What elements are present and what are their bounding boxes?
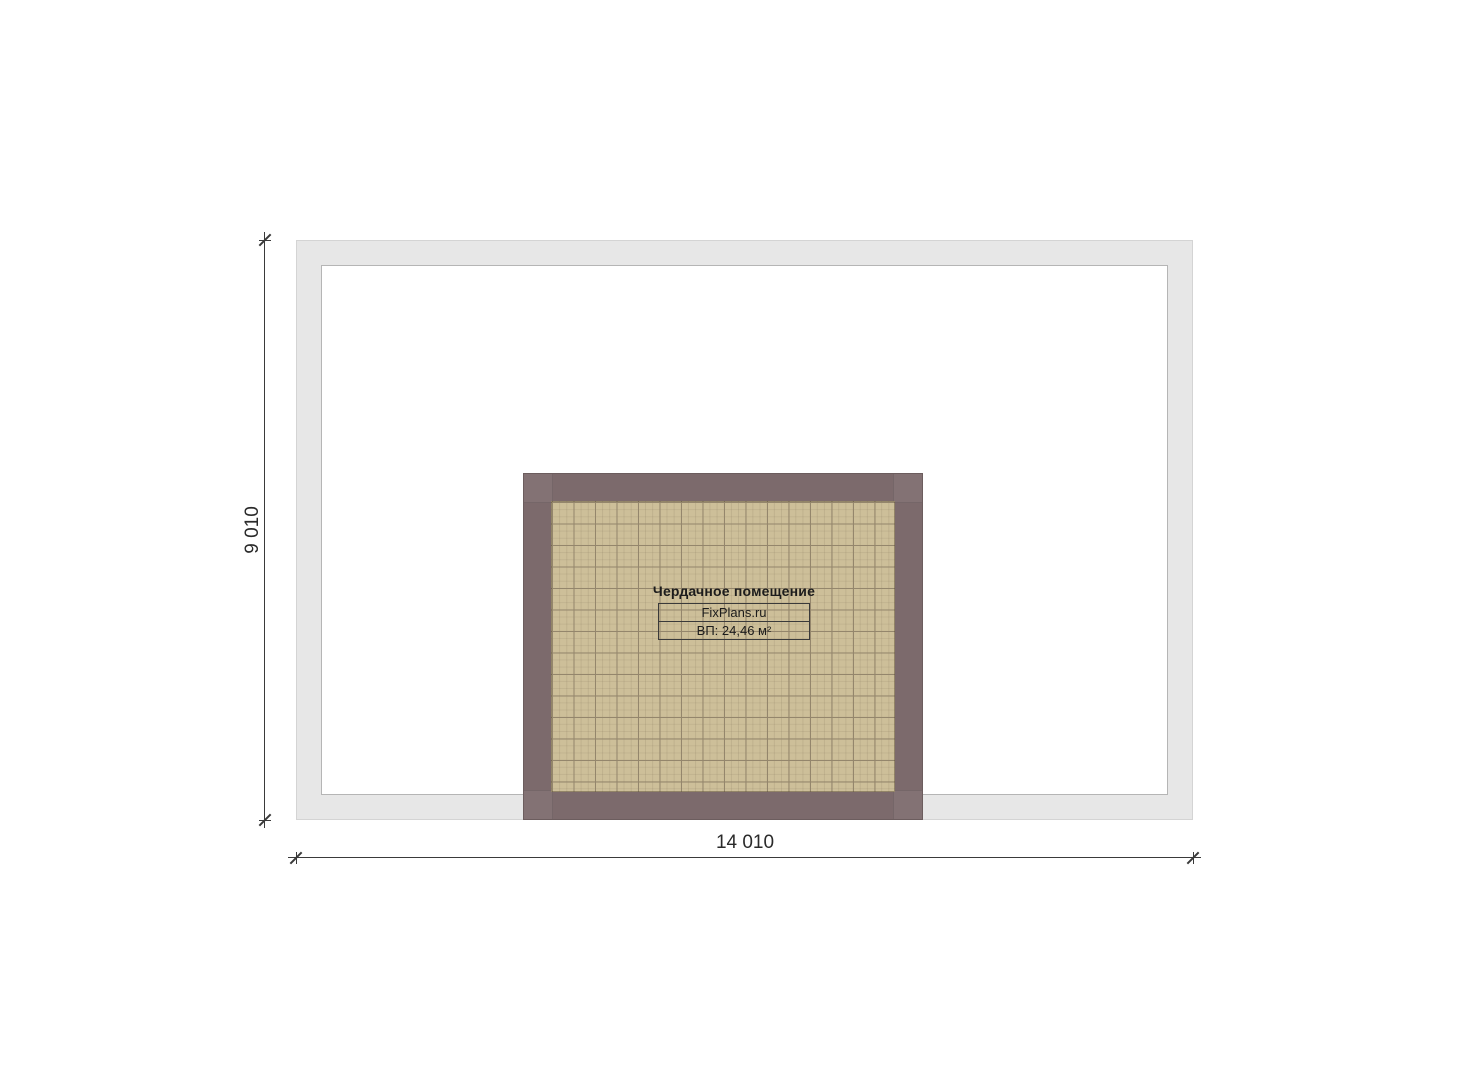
dimension-tick bbox=[256, 811, 274, 829]
vertical-dimension-line bbox=[264, 232, 265, 828]
room-label: Чердачное помещение FixPlans.ru ВП: 24,4… bbox=[658, 583, 810, 640]
horizontal-dimension-line bbox=[288, 857, 1201, 858]
height-dimension-label: 9 010 bbox=[243, 480, 263, 580]
attic-block: Чердачное помещение FixPlans.ru ВП: 24,4… bbox=[523, 473, 923, 820]
room-title: Чердачное помещение bbox=[638, 583, 830, 599]
room-info-box: FixPlans.ru ВП: 24,46 м² bbox=[658, 603, 810, 640]
floor-plan-canvas: Чердачное помещение FixPlans.ru ВП: 24,4… bbox=[0, 0, 1474, 1080]
room-area-label: ВП: 24,46 м² bbox=[659, 621, 809, 639]
dimension-tick bbox=[1184, 849, 1202, 867]
attic-corner-post-top-left bbox=[524, 474, 553, 503]
attic-corner-post-bottom-right bbox=[893, 790, 922, 819]
dimension-tick bbox=[256, 231, 274, 249]
width-dimension-label: 14 010 bbox=[695, 833, 795, 853]
attic-floor-grid bbox=[551, 501, 895, 792]
dimension-tick bbox=[287, 849, 305, 867]
attic-corner-post-bottom-left bbox=[524, 790, 553, 819]
brand-label: FixPlans.ru bbox=[659, 604, 809, 621]
attic-corner-post-top-right bbox=[893, 474, 922, 503]
